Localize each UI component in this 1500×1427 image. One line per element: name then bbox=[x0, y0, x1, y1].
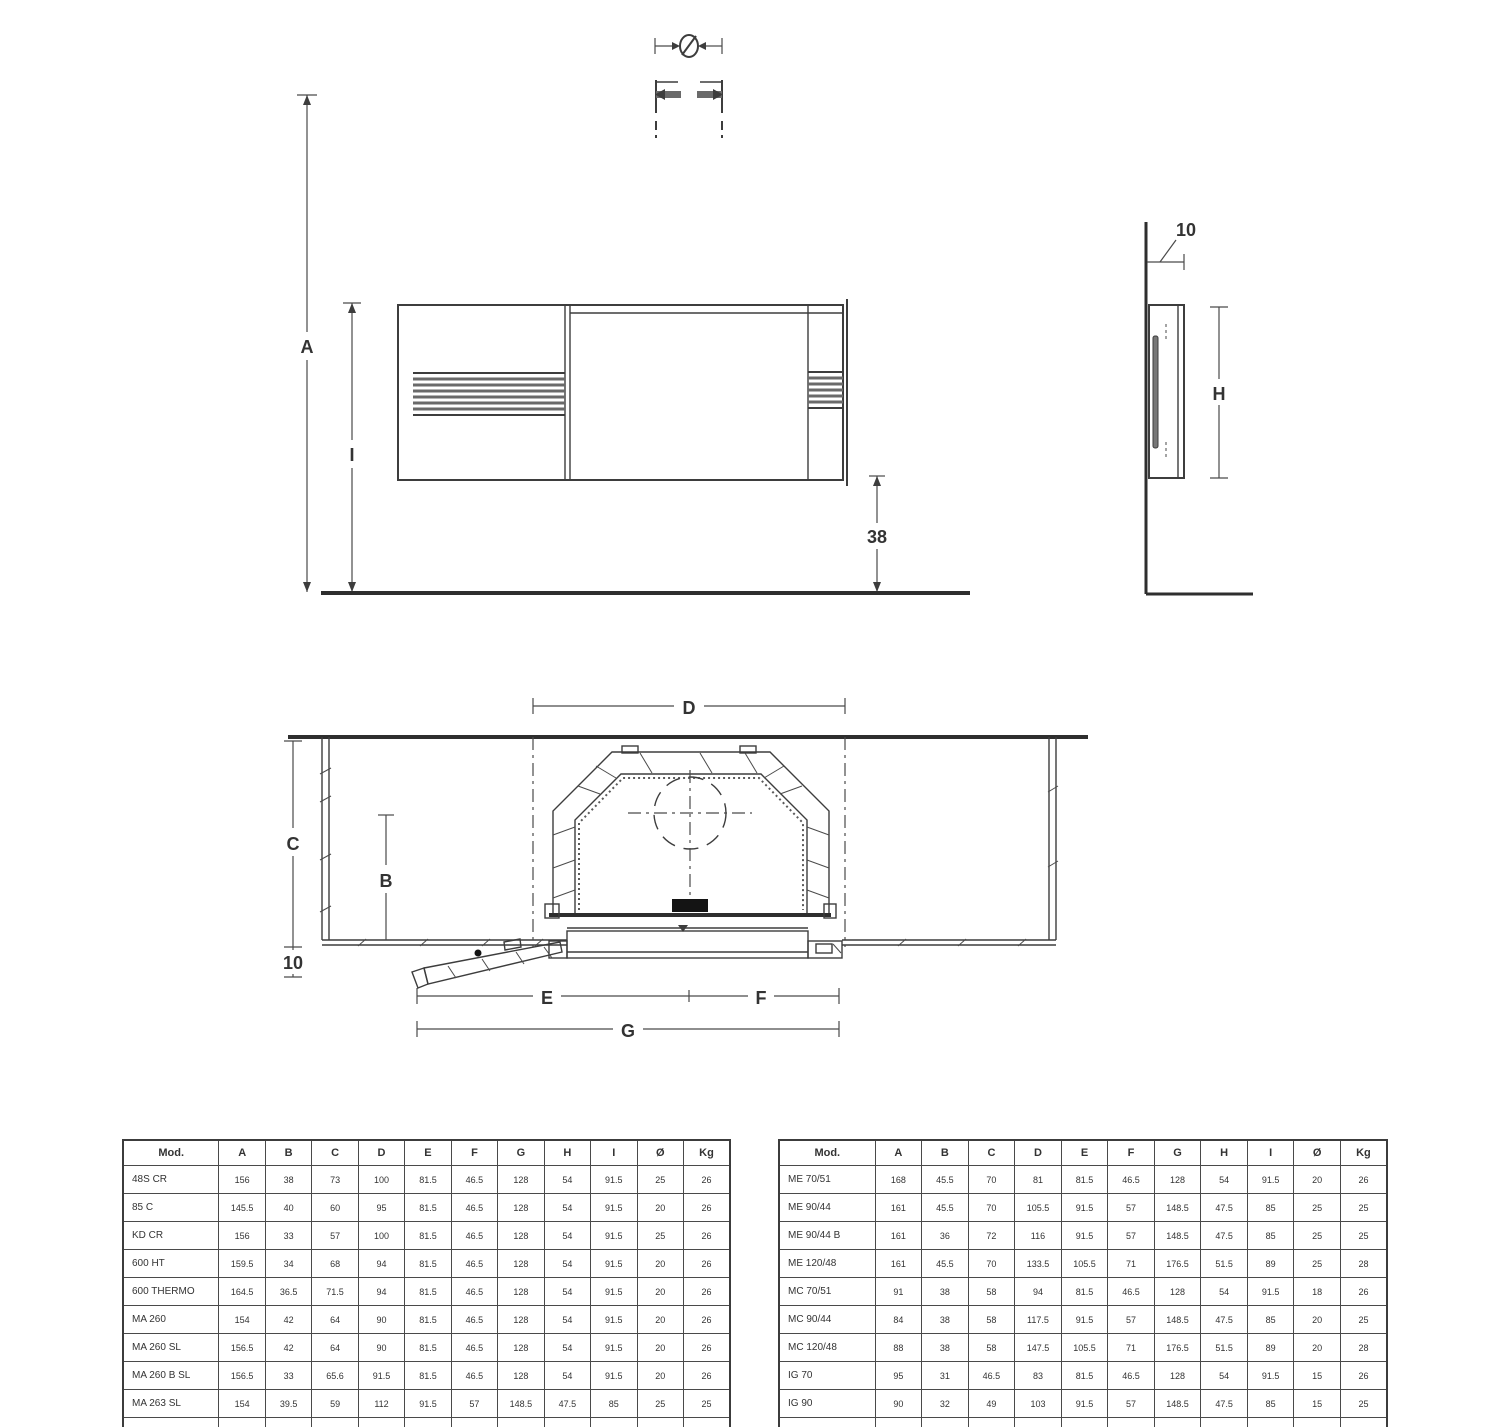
label-38: 38 bbox=[867, 527, 887, 547]
column-header: C bbox=[312, 1140, 358, 1166]
dimension-value: 71 bbox=[1108, 1334, 1155, 1362]
dimension-value: 58 bbox=[968, 1306, 1015, 1334]
column-header: F bbox=[451, 1140, 497, 1166]
technical-sheet: A I bbox=[0, 0, 1500, 1427]
dimension-value: 46.5 bbox=[1108, 1278, 1155, 1306]
dimension-value: 45.5 bbox=[922, 1194, 969, 1222]
dimension-value: 45.5 bbox=[922, 1250, 969, 1278]
dimension-value: 20 bbox=[637, 1362, 683, 1390]
dimension-value: 70 bbox=[968, 1194, 1015, 1222]
table-row: MA 263 B SL1543060.611291.557148.547.585… bbox=[123, 1418, 730, 1427]
dimension-value: 90 bbox=[358, 1334, 404, 1362]
dimension-value: 54 bbox=[544, 1334, 590, 1362]
dimension-value: 57 bbox=[312, 1222, 358, 1250]
firebox bbox=[545, 746, 842, 958]
dimension-value: 91.5 bbox=[591, 1334, 637, 1362]
plan-view: C 10 B bbox=[278, 693, 1088, 1042]
column-header: E bbox=[1061, 1140, 1108, 1166]
dimension-value: 71.5 bbox=[312, 1278, 358, 1306]
dimension-value: 156 bbox=[219, 1166, 265, 1194]
dimension-value: 148.5 bbox=[498, 1418, 544, 1427]
dimension-value: 85 bbox=[1247, 1390, 1294, 1418]
dimension-value: 128 bbox=[498, 1222, 544, 1250]
column-header: D bbox=[358, 1140, 404, 1166]
dimension-value: 128 bbox=[498, 1334, 544, 1362]
dimension-value: 57 bbox=[1108, 1306, 1155, 1334]
dimension-value: 26 bbox=[683, 1222, 730, 1250]
label-E: E bbox=[541, 988, 553, 1008]
dimension-value: 148.5 bbox=[1154, 1222, 1201, 1250]
dimension-value: 28 bbox=[1340, 1250, 1387, 1278]
vent-grille-right bbox=[808, 372, 843, 408]
dimension-B: B bbox=[373, 815, 399, 940]
dimension-value: 54 bbox=[544, 1166, 590, 1194]
dimension-value: 148.5 bbox=[1154, 1390, 1201, 1418]
column-header: G bbox=[1154, 1140, 1201, 1166]
dimension-value: 148.5 bbox=[1154, 1306, 1201, 1334]
dimension-value: 91.5 bbox=[591, 1166, 637, 1194]
table-row: MA 260 B SL156.53365.691.581.546.5128549… bbox=[123, 1362, 730, 1390]
dimension-value: 91.5 bbox=[405, 1418, 451, 1427]
dimension-value: 60 bbox=[312, 1194, 358, 1222]
dimension-value: 51.5 bbox=[1201, 1250, 1248, 1278]
column-header: Kg bbox=[683, 1140, 730, 1166]
dimension-value: 33 bbox=[265, 1222, 311, 1250]
dimension-value: 54 bbox=[544, 1250, 590, 1278]
dimension-value: 91.5 bbox=[358, 1362, 404, 1390]
dimension-value: 117.5 bbox=[1015, 1306, 1062, 1334]
dimension-value: 72 bbox=[968, 1222, 1015, 1250]
hood-side-profile bbox=[1149, 305, 1184, 478]
dimension-value: 20 bbox=[637, 1334, 683, 1362]
table-row: MA 26015442649081.546.51285491.52026 bbox=[123, 1306, 730, 1334]
column-header: B bbox=[922, 1140, 969, 1166]
dimension-value: 26 bbox=[683, 1306, 730, 1334]
dimension-value: 33 bbox=[265, 1362, 311, 1390]
dimension-value: 148.5 bbox=[1154, 1194, 1201, 1222]
dimension-value: 89 bbox=[1247, 1250, 1294, 1278]
dimension-value: 128 bbox=[498, 1194, 544, 1222]
dimension-value: 161 bbox=[875, 1250, 922, 1278]
column-header: Ø bbox=[1294, 1140, 1341, 1166]
dimension-value: 91.5 bbox=[591, 1250, 637, 1278]
column-header: D bbox=[1015, 1140, 1062, 1166]
dimension-value: 91.5 bbox=[1061, 1306, 1108, 1334]
label-10-offset: 10 bbox=[283, 953, 303, 973]
dimension-value: 103 bbox=[1015, 1390, 1062, 1418]
table-row: 600 THERMO164.536.571.59481.546.51285491… bbox=[123, 1278, 730, 1306]
label-G: G bbox=[621, 1021, 635, 1041]
dimension-value: 36.5 bbox=[265, 1278, 311, 1306]
table-row: MA 263 SL15439.55911291.557148.547.58525… bbox=[123, 1390, 730, 1418]
column-header: Mod. bbox=[779, 1140, 875, 1166]
dimension-value: 94 bbox=[358, 1278, 404, 1306]
dimension-value: 46.5 bbox=[1108, 1362, 1155, 1390]
dimension-value: 176.5 bbox=[1154, 1334, 1201, 1362]
dimension-value: 91.5 bbox=[1061, 1194, 1108, 1222]
dimension-value: 95 bbox=[875, 1362, 922, 1390]
column-header: A bbox=[875, 1140, 922, 1166]
dimension-value: 51.5 bbox=[1201, 1334, 1248, 1362]
dimension-C: C bbox=[280, 741, 306, 947]
table-row: KD CR156335710081.546.51285491.52526 bbox=[123, 1222, 730, 1250]
dimension-value: 88 bbox=[875, 1334, 922, 1362]
dimension-value: 42 bbox=[265, 1306, 311, 1334]
dimension-value: 25 bbox=[1340, 1306, 1387, 1334]
label-H: H bbox=[1213, 384, 1226, 404]
column-header: A bbox=[219, 1140, 265, 1166]
dimension-value: 68 bbox=[312, 1250, 358, 1278]
dimension-value: 46.5 bbox=[451, 1278, 497, 1306]
dimension-value: 81.5 bbox=[405, 1222, 451, 1250]
dimension-value: 112 bbox=[358, 1390, 404, 1418]
dimension-value: 45.5 bbox=[922, 1166, 969, 1194]
dimension-value: 161 bbox=[875, 1222, 922, 1250]
dimensions-table-left: Mod.ABCDEFGHIØKg48S CR156387310081.546.5… bbox=[122, 1139, 731, 1427]
dimension-value: 94 bbox=[1015, 1278, 1062, 1306]
dimension-value: 91.5 bbox=[405, 1390, 451, 1418]
front-view: A I bbox=[294, 95, 970, 593]
dimension-value: 60.6 bbox=[312, 1418, 358, 1427]
dimension-value: 54 bbox=[1201, 1166, 1248, 1194]
dimension-value: 57 bbox=[1108, 1194, 1155, 1222]
dimension-value: 46.5 bbox=[451, 1166, 497, 1194]
dimension-value: 148.5 bbox=[498, 1390, 544, 1418]
dimension-value: 91.5 bbox=[591, 1362, 637, 1390]
dimension-value: 91.5 bbox=[591, 1278, 637, 1306]
dimension-value: 91.5 bbox=[1247, 1166, 1294, 1194]
dimension-value: 32 bbox=[922, 1390, 969, 1418]
dimension-value: 31 bbox=[922, 1362, 969, 1390]
dimension-value: 91.5 bbox=[591, 1222, 637, 1250]
dimension-value: 91 bbox=[875, 1278, 922, 1306]
dimension-value: 25 bbox=[1340, 1222, 1387, 1250]
dimension-value: 25 bbox=[1340, 1418, 1387, 1427]
dimension-value: 47.5 bbox=[1201, 1418, 1248, 1427]
label-10-depth: 10 bbox=[1176, 220, 1196, 240]
table-row: IG 70953146.58381.546.51285491.51526 bbox=[779, 1362, 1387, 1390]
dimension-value: 81.5 bbox=[1061, 1362, 1108, 1390]
column-header: Kg bbox=[1340, 1140, 1387, 1166]
dimension-value: 91.5 bbox=[1247, 1278, 1294, 1306]
dimension-value: 81.5 bbox=[405, 1278, 451, 1306]
table-row: MC 90/44843858117.591.557148.547.5852025 bbox=[779, 1306, 1387, 1334]
table-row: ME 70/5116845.5708181.546.51285491.52026 bbox=[779, 1166, 1387, 1194]
column-header: C bbox=[968, 1140, 1015, 1166]
dimension-value: 91.5 bbox=[1061, 1390, 1108, 1418]
dimension-value: 176.5 bbox=[1154, 1250, 1201, 1278]
dimension-value: 25 bbox=[637, 1222, 683, 1250]
dimension-value: 20 bbox=[1294, 1306, 1341, 1334]
dimension-value: 122 bbox=[1015, 1418, 1062, 1427]
glass-edge bbox=[1153, 336, 1158, 448]
dimension-value: 90 bbox=[875, 1418, 922, 1427]
dimension-value: 148.5 bbox=[1154, 1418, 1201, 1427]
label-I: I bbox=[349, 445, 354, 465]
dimension-value: 128 bbox=[498, 1306, 544, 1334]
model-name: MC 120/48 bbox=[779, 1334, 875, 1362]
model-name: IG 70 bbox=[779, 1362, 875, 1390]
dimension-38: 38 bbox=[862, 476, 893, 592]
dimension-value: 91.5 bbox=[591, 1194, 637, 1222]
table-row: 48S CR156387310081.546.51285491.52526 bbox=[123, 1166, 730, 1194]
dimension-value: 154 bbox=[219, 1418, 265, 1427]
dimension-value: 25 bbox=[683, 1418, 730, 1427]
dimension-value: 112 bbox=[358, 1418, 404, 1427]
dimension-value: 91.5 bbox=[591, 1306, 637, 1334]
dimension-value: 54 bbox=[1201, 1278, 1248, 1306]
dimension-value: 46.5 bbox=[451, 1222, 497, 1250]
model-name: MA 260 bbox=[123, 1306, 219, 1334]
dimension-value: 105.5 bbox=[1015, 1194, 1062, 1222]
dimension-value: 25 bbox=[637, 1390, 683, 1418]
dimension-value: 26 bbox=[683, 1362, 730, 1390]
model-name: MA 260 B SL bbox=[123, 1362, 219, 1390]
dimension-value: 90 bbox=[358, 1306, 404, 1334]
dimension-value: 89 bbox=[1247, 1334, 1294, 1362]
dimension-value: 39.5 bbox=[265, 1390, 311, 1418]
dimension-value: 91.5 bbox=[1061, 1418, 1108, 1427]
dimension-value: 38 bbox=[922, 1278, 969, 1306]
dimension-value: 70 bbox=[968, 1250, 1015, 1278]
model-name: 85 C bbox=[123, 1194, 219, 1222]
dimension-value: 58 bbox=[968, 1334, 1015, 1362]
dimension-value: 36 bbox=[922, 1222, 969, 1250]
dimension-value: 57 bbox=[1108, 1390, 1155, 1418]
table-row: 600 HT159.534689481.546.51285491.52026 bbox=[123, 1250, 730, 1278]
dimension-value: 57 bbox=[1108, 1222, 1155, 1250]
table-row: ME 120/4816145.570133.5105.571176.551.58… bbox=[779, 1250, 1387, 1278]
table-row: IG 90 B902550.512291.557148.547.5851525 bbox=[779, 1418, 1387, 1427]
dimension-value: 94 bbox=[358, 1250, 404, 1278]
dimension-value: 81.5 bbox=[405, 1194, 451, 1222]
label-A: A bbox=[301, 337, 314, 357]
dimension-value: 49 bbox=[968, 1390, 1015, 1418]
dimension-value: 70 bbox=[968, 1166, 1015, 1194]
column-header: Mod. bbox=[123, 1140, 219, 1166]
dimension-value: 91.5 bbox=[1247, 1362, 1294, 1390]
dimension-10-offset: 10 bbox=[278, 947, 308, 977]
dimensions-table-right: Mod.ABCDEFGHIØKgME 70/5116845.5708181.54… bbox=[778, 1139, 1388, 1427]
dimension-value: 25 bbox=[1340, 1194, 1387, 1222]
dimension-value: 15 bbox=[1294, 1418, 1341, 1427]
dimension-value: 54 bbox=[544, 1194, 590, 1222]
dimension-value: 81.5 bbox=[405, 1362, 451, 1390]
dimension-value: 164.5 bbox=[219, 1278, 265, 1306]
dimension-value: 25 bbox=[637, 1166, 683, 1194]
column-header: I bbox=[591, 1140, 637, 1166]
column-header: G bbox=[498, 1140, 544, 1166]
dimension-value: 25 bbox=[1340, 1390, 1387, 1418]
dimension-value: 85 bbox=[1247, 1418, 1294, 1427]
dimension-value: 128 bbox=[1154, 1166, 1201, 1194]
dimension-value: 47.5 bbox=[1201, 1194, 1248, 1222]
dimension-value: 54 bbox=[1201, 1362, 1248, 1390]
dimension-value: 20 bbox=[637, 1194, 683, 1222]
dimension-value: 26 bbox=[1340, 1362, 1387, 1390]
dimension-value: 147.5 bbox=[1015, 1334, 1062, 1362]
dimension-value: 20 bbox=[637, 1250, 683, 1278]
dimension-value: 168 bbox=[875, 1166, 922, 1194]
model-name: 600 HT bbox=[123, 1250, 219, 1278]
dimension-value: 28 bbox=[1340, 1334, 1387, 1362]
dimension-value: 154 bbox=[219, 1306, 265, 1334]
dimension-value: 81.5 bbox=[405, 1334, 451, 1362]
dimension-value: 105.5 bbox=[1061, 1334, 1108, 1362]
dimension-value: 133.5 bbox=[1015, 1250, 1062, 1278]
dimension-value: 46.5 bbox=[968, 1362, 1015, 1390]
dimension-value: 59 bbox=[312, 1390, 358, 1418]
dimension-value: 81.5 bbox=[1061, 1166, 1108, 1194]
column-header: B bbox=[265, 1140, 311, 1166]
dimension-value: 81.5 bbox=[405, 1250, 451, 1278]
dimension-value: 38 bbox=[922, 1334, 969, 1362]
dimension-value: 90 bbox=[875, 1390, 922, 1418]
dimension-value: 26 bbox=[683, 1194, 730, 1222]
right-side-wall bbox=[842, 737, 1058, 946]
dimension-value: 54 bbox=[544, 1222, 590, 1250]
dimension-value: 116 bbox=[1015, 1222, 1062, 1250]
dimension-value: 42 bbox=[265, 1334, 311, 1362]
dimension-value: 84 bbox=[875, 1306, 922, 1334]
dimension-value: 54 bbox=[544, 1278, 590, 1306]
label-F: F bbox=[756, 988, 767, 1008]
door-knob bbox=[475, 950, 482, 957]
dimension-value: 47.5 bbox=[1201, 1390, 1248, 1418]
column-header: E bbox=[405, 1140, 451, 1166]
dimension-value: 34 bbox=[265, 1250, 311, 1278]
dimension-value: 57 bbox=[451, 1390, 497, 1418]
model-name: MC 90/44 bbox=[779, 1306, 875, 1334]
dimension-value: 91.5 bbox=[1061, 1222, 1108, 1250]
dimension-value: 81.5 bbox=[405, 1306, 451, 1334]
model-name: 48S CR bbox=[123, 1166, 219, 1194]
dimension-value: 83 bbox=[1015, 1362, 1062, 1390]
dimension-drawing: A I bbox=[0, 0, 1500, 1110]
dimension-value: 128 bbox=[1154, 1362, 1201, 1390]
dimension-value: 20 bbox=[637, 1418, 683, 1427]
flue-pipe-section bbox=[655, 80, 723, 138]
dimension-value: 46.5 bbox=[451, 1362, 497, 1390]
dimension-value: 30 bbox=[265, 1418, 311, 1427]
dimension-value: 159.5 bbox=[219, 1250, 265, 1278]
dimension-value: 81.5 bbox=[405, 1166, 451, 1194]
dimension-value: 47.5 bbox=[1201, 1222, 1248, 1250]
dimension-value: 26 bbox=[1340, 1278, 1387, 1306]
model-name: ME 90/44 B bbox=[779, 1222, 875, 1250]
dimension-value: 81 bbox=[1015, 1166, 1062, 1194]
column-header: F bbox=[1108, 1140, 1155, 1166]
dimension-value: 47.5 bbox=[1201, 1306, 1248, 1334]
dimension-value: 156 bbox=[219, 1222, 265, 1250]
column-header: H bbox=[1201, 1140, 1248, 1166]
dimension-value: 25 bbox=[1294, 1194, 1341, 1222]
dimension-value: 26 bbox=[683, 1250, 730, 1278]
dimension-value: 58 bbox=[968, 1278, 1015, 1306]
dimension-value: 85 bbox=[1247, 1222, 1294, 1250]
model-name: 600 THERMO bbox=[123, 1278, 219, 1306]
dimension-value: 145.5 bbox=[219, 1194, 265, 1222]
dimension-value: 54 bbox=[544, 1306, 590, 1334]
hearth bbox=[567, 931, 808, 958]
dimension-value: 26 bbox=[1340, 1166, 1387, 1194]
dimension-value: 26 bbox=[683, 1278, 730, 1306]
table-header-row: Mod.ABCDEFGHIØKg bbox=[123, 1140, 730, 1166]
dimension-value: 85 bbox=[1247, 1306, 1294, 1334]
dimension-value: 25 bbox=[1294, 1222, 1341, 1250]
dimension-D: D bbox=[533, 693, 845, 719]
dimension-value: 100 bbox=[358, 1166, 404, 1194]
dimension-value: 20 bbox=[1294, 1166, 1341, 1194]
model-name: MA 263 B SL bbox=[123, 1418, 219, 1427]
dimension-value: 25 bbox=[683, 1390, 730, 1418]
table-row: IG 9090324910391.557148.547.5851525 bbox=[779, 1390, 1387, 1418]
column-header: Ø bbox=[637, 1140, 683, 1166]
dimension-value: 57 bbox=[451, 1418, 497, 1427]
dimension-value: 46.5 bbox=[451, 1250, 497, 1278]
dimension-value: 47.5 bbox=[544, 1390, 590, 1418]
model-name: IG 90 bbox=[779, 1390, 875, 1418]
dimension-value: 46.5 bbox=[1108, 1166, 1155, 1194]
dimension-value: 25 bbox=[1294, 1250, 1341, 1278]
dimension-value: 154 bbox=[219, 1390, 265, 1418]
dimension-value: 20 bbox=[637, 1306, 683, 1334]
dimension-value: 18 bbox=[1294, 1278, 1341, 1306]
table-row: MC 70/519138589481.546.51285491.51826 bbox=[779, 1278, 1387, 1306]
dimension-value: 65.6 bbox=[312, 1362, 358, 1390]
dimension-value: 26 bbox=[683, 1166, 730, 1194]
table-row: ME 90/4416145.570105.591.557148.547.5852… bbox=[779, 1194, 1387, 1222]
dimension-value: 46.5 bbox=[451, 1306, 497, 1334]
dimension-value: 64 bbox=[312, 1334, 358, 1362]
dimension-G: G bbox=[417, 1016, 839, 1042]
dimension-H: H bbox=[1207, 307, 1231, 478]
damper bbox=[672, 899, 708, 912]
dimension-E-F: E F bbox=[417, 983, 839, 1009]
dimension-value: 81.5 bbox=[1061, 1278, 1108, 1306]
table-row: 85 C145.540609581.546.51285491.52026 bbox=[123, 1194, 730, 1222]
dimension-value: 128 bbox=[1154, 1278, 1201, 1306]
table-row: MA 260 SL156.542649081.546.51285491.5202… bbox=[123, 1334, 730, 1362]
dimension-value: 73 bbox=[312, 1166, 358, 1194]
side-view: 10 H bbox=[1146, 220, 1253, 594]
table-row: ME 90/44 B161367211691.557148.547.585252… bbox=[779, 1222, 1387, 1250]
dimension-value: 57 bbox=[1108, 1418, 1155, 1427]
dimension-value: 128 bbox=[498, 1362, 544, 1390]
dimension-value: 54 bbox=[544, 1362, 590, 1390]
dimension-I: I bbox=[343, 303, 361, 592]
dimension-value: 156.5 bbox=[219, 1362, 265, 1390]
dimension-value: 128 bbox=[498, 1250, 544, 1278]
dimension-value: 47.5 bbox=[544, 1418, 590, 1427]
open-door bbox=[412, 939, 562, 988]
column-header: H bbox=[544, 1140, 590, 1166]
dimension-value: 20 bbox=[637, 1278, 683, 1306]
dimension-value: 50.5 bbox=[968, 1418, 1015, 1427]
dimension-value: 95 bbox=[358, 1194, 404, 1222]
vent-grille-left bbox=[413, 373, 565, 415]
dimension-value: 26 bbox=[683, 1334, 730, 1362]
label-C: C bbox=[287, 834, 300, 854]
dimension-value: 38 bbox=[265, 1166, 311, 1194]
dimension-value: 161 bbox=[875, 1194, 922, 1222]
model-name: KD CR bbox=[123, 1222, 219, 1250]
model-name: ME 70/51 bbox=[779, 1166, 875, 1194]
dimension-A: A bbox=[294, 95, 320, 592]
dimension-value: 105.5 bbox=[1061, 1250, 1108, 1278]
dimension-value: 156.5 bbox=[219, 1334, 265, 1362]
dimension-value: 20 bbox=[1294, 1334, 1341, 1362]
